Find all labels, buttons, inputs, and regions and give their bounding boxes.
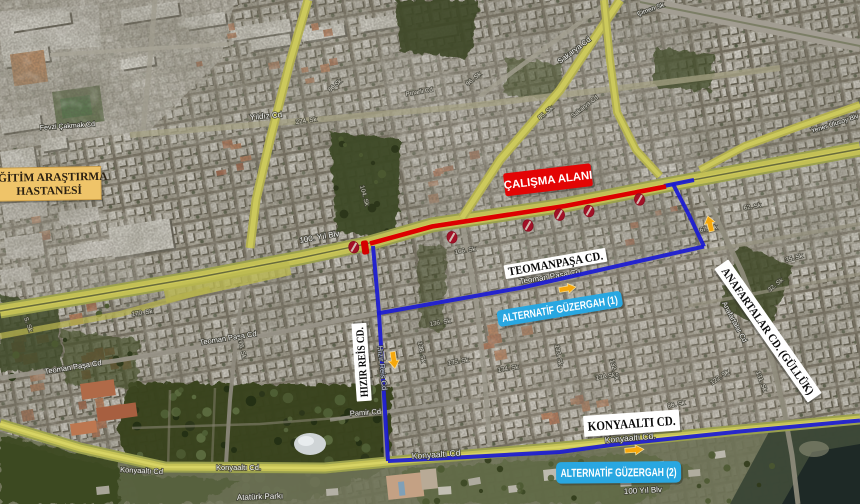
svg-text:Atatürk Parkı: Atatürk Parkı xyxy=(237,491,284,502)
svg-text:HASTANESİ: HASTANESİ xyxy=(16,183,82,198)
svg-text:Konyaaltı Cd.: Konyaaltı Cd. xyxy=(216,463,261,472)
svg-text:ALTERNATİF GÜZERGAH (2): ALTERNATİF GÜZERGAH (2) xyxy=(561,466,677,480)
